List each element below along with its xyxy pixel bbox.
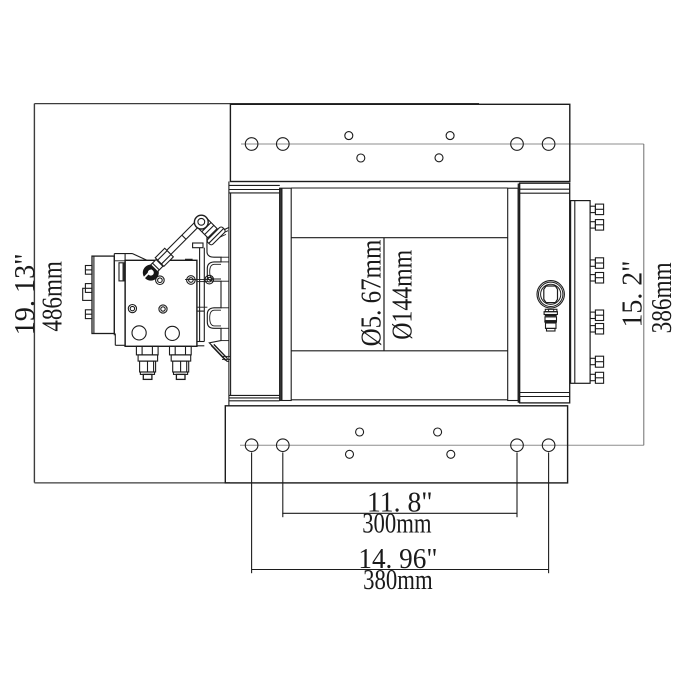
- svg-text:300mm: 300mm: [362, 509, 431, 540]
- svg-text:386mm: 386mm: [647, 262, 678, 333]
- svg-text:486mm: 486mm: [38, 261, 69, 332]
- svg-text:Ø5. 67mm: Ø5. 67mm: [357, 240, 388, 347]
- svg-text:15. 2": 15. 2": [618, 261, 649, 328]
- svg-text:380mm: 380mm: [363, 565, 433, 596]
- svg-text:Ø144mm: Ø144mm: [388, 250, 419, 340]
